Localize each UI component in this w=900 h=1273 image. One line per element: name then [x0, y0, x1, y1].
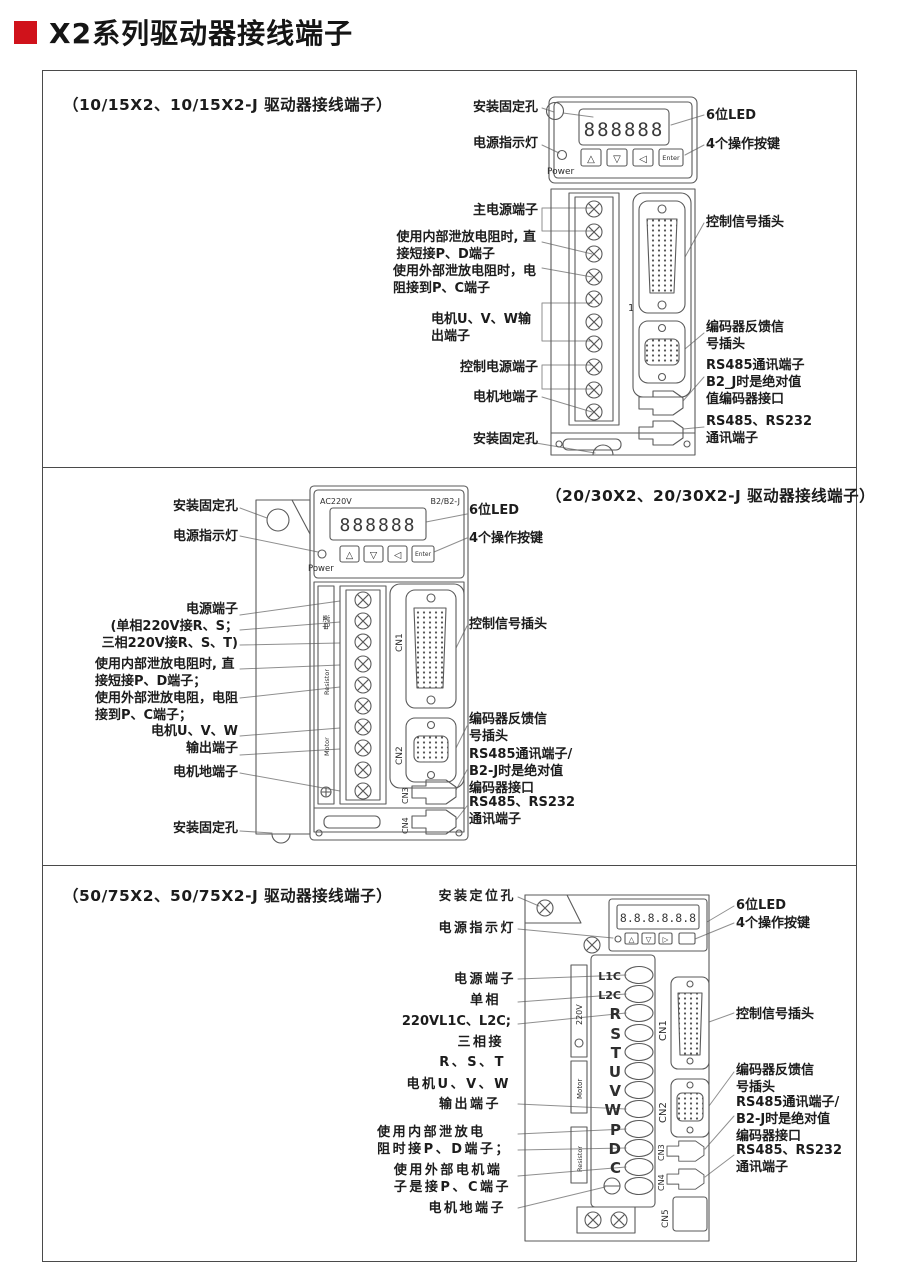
callout-power-indicator: 电源指示灯	[173, 528, 238, 545]
operator-panel: 8.8.8.8.8.8 △ ▽ ▷	[609, 899, 707, 951]
cn5-connector	[673, 1197, 707, 1231]
callout-mounting-hole-bottom: 安装固定孔	[173, 820, 238, 837]
mounting-hole-top	[267, 509, 289, 531]
callout-220v-l1c-l2c: 220VL1C、L2C;	[402, 1013, 511, 1030]
ground-terminal-symbol	[604, 1178, 620, 1194]
rs485-jack	[639, 391, 683, 415]
power-led	[318, 550, 326, 558]
mounting-ear	[525, 895, 581, 923]
callout-6digit-led: 6位LED	[469, 502, 519, 519]
callout-4-op-buttons: 4个操作按键	[469, 530, 543, 547]
callout-4-op-buttons: 4个操作按键	[706, 136, 780, 153]
callout-control-signal-plug: 控制信号插头	[736, 1006, 814, 1023]
rs232-jack	[667, 1169, 704, 1189]
panel-20-30x2: AC220V B2/B2-J 888888 Power △ ▽ ◁ Enter	[42, 467, 857, 866]
callout-output-terminals: 输出端子	[439, 1096, 501, 1113]
cn1-label: CN1	[658, 1020, 669, 1041]
cn2-label: CN2	[395, 746, 405, 765]
power-led	[615, 936, 621, 942]
callout-control-signal-plug: 控制信号插头	[706, 214, 784, 231]
drive-unit: AC220V B2/B2-J 888888 Power △ ▽ ◁ Enter	[256, 486, 468, 843]
callout-main-power-terminals: 主电源端子	[473, 202, 538, 219]
callout-rs485-comm-terminal: RS485通讯端子/ B2-J时是绝对值 编码器接口	[469, 746, 572, 797]
power-led	[558, 151, 567, 160]
page: X2系列驱动器接线端子	[0, 0, 900, 1273]
bottom-plate	[551, 433, 695, 455]
callout-motor-ground: 电机地端子	[428, 1200, 506, 1217]
strip-220v-label: 220V	[575, 1004, 584, 1025]
enter-button	[679, 933, 695, 944]
panel-title-50-75x2: （50/75X2、50/75X2-J 驱动器接线端子）	[63, 886, 392, 906]
mounting-notch-bottom	[272, 834, 290, 843]
strip-power-label: 电源	[321, 615, 331, 630]
panel-model-label: B2/B2-J	[430, 497, 460, 506]
terminal-l2c: L2C	[598, 989, 621, 1002]
panel-title-20-30x2: （20/30X2、20/30X2-J 驱动器接线端子）	[546, 486, 875, 506]
strip-motor-label: Motor	[576, 1079, 584, 1099]
drive-unit: 888888 Power △ ▽ ◁ Enter	[547, 97, 697, 455]
down-button-glyph: ▽	[646, 935, 652, 944]
callout-rs485-rs232-comm: RS485、RS232 通讯端子	[706, 413, 812, 447]
cn2-label: CN2	[658, 1102, 669, 1123]
panel-50-75x2: 8.8.8.8.8.8 △ ▽ ▷ 220V Motor	[42, 865, 857, 1262]
page-header: X2系列驱动器接线端子	[14, 12, 353, 52]
callout-motor-uvw-output: 电机U、V、W输 出端子	[431, 311, 531, 345]
up-button-glyph: △	[587, 154, 595, 165]
callout-three-phase: 三相接	[457, 1034, 504, 1051]
rs485-jack	[412, 780, 456, 804]
callout-4-op-buttons: 4个操作按键	[736, 915, 810, 932]
encoder-feedback-connector	[671, 1079, 709, 1137]
callout-encoder-feedback-plug: 编码器反馈信 号插头	[706, 319, 784, 353]
callout-control-signal-plug: 控制信号插头	[469, 616, 547, 633]
callout-mounting-hole-top: 安装固定孔	[173, 498, 238, 515]
callout-internal-bleeder-note: 使用内部泄放电阻时, 直 接短接P、D端子	[397, 229, 536, 263]
terminal-r: R	[609, 1005, 621, 1023]
terminal-v: V	[609, 1082, 621, 1100]
callout-power-indicator: 电源指示灯	[438, 920, 516, 937]
bottom-plate	[314, 808, 464, 836]
down-button-glyph: ▽	[370, 550, 378, 561]
cn1-label: CN1	[395, 633, 405, 652]
callout-internal-bleeder-note: 使用内部泄放电 阻时接P、D端子；	[377, 1124, 511, 1158]
connector-panel: CN1 CN2	[390, 584, 464, 788]
rs485-jack	[667, 1141, 704, 1161]
callout-motor-uvw: 电机U、V、W	[407, 1076, 511, 1093]
callout-motor-ground: 电机地端子	[473, 389, 538, 406]
callout-motor-uvw-output: 电机U、V、W 输出端子	[151, 723, 238, 757]
panel-title-10-15x2: （10/15X2、10/15X2-J 驱动器接线端子）	[63, 95, 392, 115]
callout-bleeder-resistor-note: 使用内部泄放电阻时, 直 接短接P、D端子； 使用外部泄放电阻，电阻 接到P、C…	[95, 656, 238, 725]
control-signal-connector	[406, 590, 456, 708]
ground-symbol	[321, 787, 331, 797]
callout-rst: R、S、T	[439, 1054, 506, 1071]
callout-6digit-led: 6位LED	[736, 897, 786, 914]
terminal-d: D	[609, 1140, 621, 1158]
bottom-screws	[577, 1207, 635, 1233]
callout-rs485-rs232-comm: RS485、RS232 通讯端子	[736, 1142, 842, 1176]
callout-external-terminal-note: 使用外部电机端 子是接P、C端子	[394, 1162, 511, 1196]
strip-resistor-label: Resistor	[323, 669, 331, 695]
power-led-label: Power	[547, 167, 575, 177]
callout-rs485-comm-terminal: RS485通讯端子 B2_J时是绝对值 值编码器接口	[706, 357, 805, 408]
connector-panel	[633, 193, 691, 397]
cn5-label: CN5	[661, 1209, 671, 1228]
callout-power-terminals: 电源端子 (单相220V接R、S； 三相220V接R、S、T)	[102, 601, 238, 652]
callout-single-phase: 单相	[470, 992, 501, 1009]
callout-control-power-terminals: 控制电源端子	[460, 359, 538, 376]
terminal-l1c: L1C	[598, 970, 621, 983]
encoder-feedback-connector	[406, 718, 456, 782]
page-title: X2系列驱动器接线端子	[49, 12, 353, 52]
control-signal-connector	[671, 977, 709, 1069]
callout-mounting-hole-top: 安装固定孔	[473, 99, 538, 116]
case-screw-top	[584, 937, 600, 953]
led-display-digits: 888888	[584, 119, 665, 141]
terminal-u: U	[609, 1063, 621, 1081]
terminal-p: P	[610, 1121, 621, 1139]
callout-mounting-hole: 安装定位孔	[438, 888, 516, 905]
enter-button-label: Enter	[415, 551, 432, 558]
red-square-bullet	[14, 21, 37, 44]
terminal-s: S	[610, 1025, 621, 1043]
left-button-glyph: ◁	[639, 154, 647, 165]
encoder-feedback-connector	[639, 321, 685, 383]
strip-motor-label: Motor	[323, 737, 331, 756]
callout-encoder-feedback-plug: 编码器反馈信 号插头	[736, 1062, 814, 1096]
enter-button-label: Enter	[662, 154, 680, 162]
led-display-digits: 888888	[339, 515, 416, 536]
terminal-c: C	[610, 1159, 621, 1177]
side-label-strip: 电源 Resistor Motor	[318, 586, 334, 804]
rs232-jack	[412, 810, 456, 834]
mounting-plate	[256, 500, 310, 843]
operator-panel: AC220V B2/B2-J 888888 Power △ ▽ ◁ Enter	[308, 490, 464, 578]
callout-rs485-rs232-comm: RS485、RS232 通讯端子	[469, 794, 575, 828]
right-button-glyph: ▷	[663, 935, 669, 944]
led-display-digits: 8.8.8.8.8.8	[620, 911, 696, 925]
callout-motor-ground: 电机地端子	[173, 764, 238, 781]
terminal-t: T	[611, 1044, 622, 1062]
callout-power-indicator: 电源指示灯	[473, 135, 538, 152]
left-button-glyph: ◁	[394, 550, 402, 561]
cn3-label: CN3	[401, 787, 410, 804]
strip-resistor-label: Resistor	[576, 1146, 584, 1172]
operator-panel: 888888 Power △ ▽ ◁ Enter	[547, 97, 697, 183]
drive-unit: 8.8.8.8.8.8 △ ▽ ▷ 220V Motor	[525, 895, 709, 1241]
callout-rs485-comm-terminal: RS485通讯端子/ B2-J时是绝对值 编码器接口	[736, 1094, 839, 1145]
panel-voltage-label: AC220V	[320, 497, 352, 506]
control-signal-connector	[639, 201, 685, 313]
up-button-glyph: △	[629, 935, 635, 944]
cn4-label: CN4	[657, 1174, 666, 1191]
cn3-label: CN3	[657, 1144, 666, 1161]
terminal-strip	[340, 586, 386, 804]
terminal-strip	[569, 193, 619, 425]
panel-10-15x2: 888888 Power △ ▽ ◁ Enter	[42, 70, 857, 468]
down-button-glyph: ▽	[613, 154, 621, 165]
up-button-glyph: △	[346, 550, 354, 561]
callout-mounting-hole-bottom: 安装固定孔	[473, 431, 538, 448]
terminal-w: W	[604, 1101, 621, 1119]
callout-encoder-feedback-plug: 编码器反馈信 号插头	[469, 711, 547, 745]
callout-power-terminals: 电源端子	[454, 971, 516, 988]
callout-6digit-led: 6位LED	[706, 107, 756, 124]
callout-external-bleeder-note: 使用外部泄放电阻时，电 阻接到P、C端子	[393, 263, 536, 297]
power-led-label: Power	[308, 564, 334, 574]
